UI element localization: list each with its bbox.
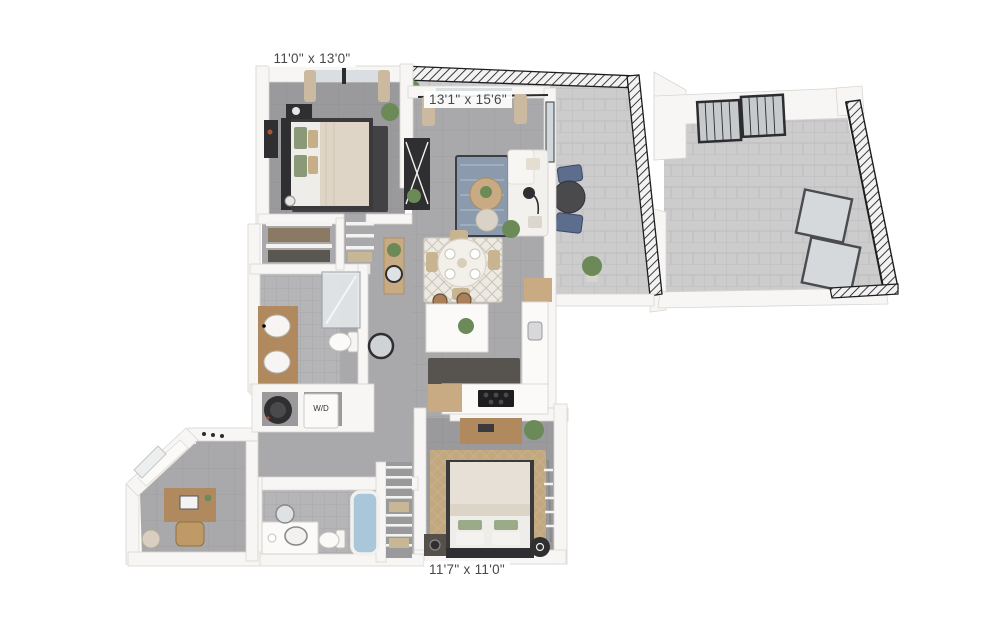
closet1-shelf-1 [266,222,332,226]
bedroom1-window-glass [312,70,386,82]
den-right-wall [246,441,258,561]
pouf [476,209,498,231]
closet1-shelf-2 [266,244,332,248]
bathroom1-sink-1 [264,315,290,337]
water-heater-top [270,402,286,418]
dining-chair-left [426,252,438,272]
terrace-window-top [697,95,785,142]
hall-round-mirror [369,334,393,358]
dining-area [424,230,502,302]
hall-closet-shelf-1 [346,222,374,226]
terrace-window-pane-1 [697,100,741,142]
bathroom2-basin [285,527,307,545]
dining-centerpiece [457,258,467,268]
kitchen-wood-cabinet [428,384,462,412]
bathroom2-soap [268,534,276,542]
kitchen-upper-cabinet [524,278,552,302]
terrace [650,72,898,312]
den-desk-plant [205,495,212,502]
walkin-closet1 [266,222,332,262]
bed2-headboard [446,548,534,558]
bedroom2-dresser-decor [478,424,494,432]
bedroom2-bed [446,460,534,558]
dining-chair-right [488,250,500,270]
bathroom1-sink-2 [264,351,290,373]
bedroom1-dimensions-label: 11'0" x 13'0" [269,50,356,67]
bedroom2-closet [386,462,412,558]
den-bottom-wall [128,552,260,566]
den-chair [176,522,204,546]
closet-divider-wall [336,218,344,270]
bed2-pillow-white-2 [492,532,520,545]
hall-closet-shelf-2 [346,234,374,238]
sofa-pillow-1 [526,158,540,170]
bathroom1-toilet [329,332,358,352]
bed2-duvet-fold [450,504,530,516]
closet2-box-2 [389,538,409,548]
bedroom1-wall-art [264,120,278,158]
bedroom1-bed [281,118,373,210]
dining-plate-1 [445,249,455,259]
bed1-pillow-tan-2 [308,156,318,174]
den-laptop [180,496,198,509]
dining-plate-2 [470,249,480,259]
living-dimensions-label: 13'1" x 15'6" [424,91,512,108]
bed2-pillow-green-1 [458,520,482,530]
terrace-window-pane-2 [741,95,785,137]
hall-closet-shelf-3 [346,246,374,250]
den-floor-lamp [142,530,160,548]
floorplan-canvas: 7 [0,0,998,626]
bedroom2-right-wall [554,404,567,564]
bedroom2-dimensions-label: 11'7" x 11'0" [424,561,510,578]
bedroom1-art-accent [268,130,273,135]
bed1-pillow-green-2 [294,155,307,177]
bed1-pillow-green-1 [294,127,307,149]
bedroom2-nightstand-right [530,537,550,557]
bed2-pillow-white-1 [456,532,484,545]
bedroom1-window-mullion [342,68,346,84]
console-plant [387,243,401,257]
living-curtain-right [514,94,527,124]
closet2-box-1 [389,502,409,512]
bed2-duvet [450,462,530,506]
console-vase [386,266,402,282]
water-heater-valve [266,416,269,419]
bedroom2-plant [524,420,544,440]
closet1-clothes-2 [268,250,330,262]
bedroom1-curtain-right [378,70,390,102]
kitchen-counter-right [522,302,548,392]
media-shelf [404,138,430,210]
bed2-pillow-green-2 [494,520,518,530]
bathtub [352,492,378,554]
washer-dryer-label: W/D [313,404,329,413]
balcony-table [553,181,585,213]
bedroom1-curtain-left [304,70,316,102]
media-shelf-plant [407,189,421,203]
terrace-right-pane-2 [802,237,860,292]
bedroom2-nightstand-left-top [430,540,440,550]
dining-plate-3 [445,269,455,279]
balcony-bistro-set [553,164,585,233]
coffee-table-plant [480,186,492,198]
kitchen-sink [528,322,542,340]
balcony-bottom-wall [548,294,654,306]
bedroom1-floor-lamp [285,196,295,206]
hall-closet-items [348,252,372,262]
bed1-pillow-tan-1 [308,130,318,148]
balcony-chair-2 [555,212,583,233]
terrace-right-pane-1 [796,189,852,242]
dining-plate-4 [470,269,480,279]
bathroom2-mirror [276,505,294,523]
sofa-pillow-2 [528,216,542,228]
bedroom1-lamp [292,107,300,115]
kitchen-cooktop [478,390,514,407]
living-plant [502,220,520,238]
balcony-plant-leaves [582,256,602,276]
kitchen-island-plant [458,318,474,334]
closet1-clothes [268,228,330,242]
bed1-duvet [320,122,369,206]
bedroom1-plant [381,103,399,121]
kitchen-island [426,304,488,352]
